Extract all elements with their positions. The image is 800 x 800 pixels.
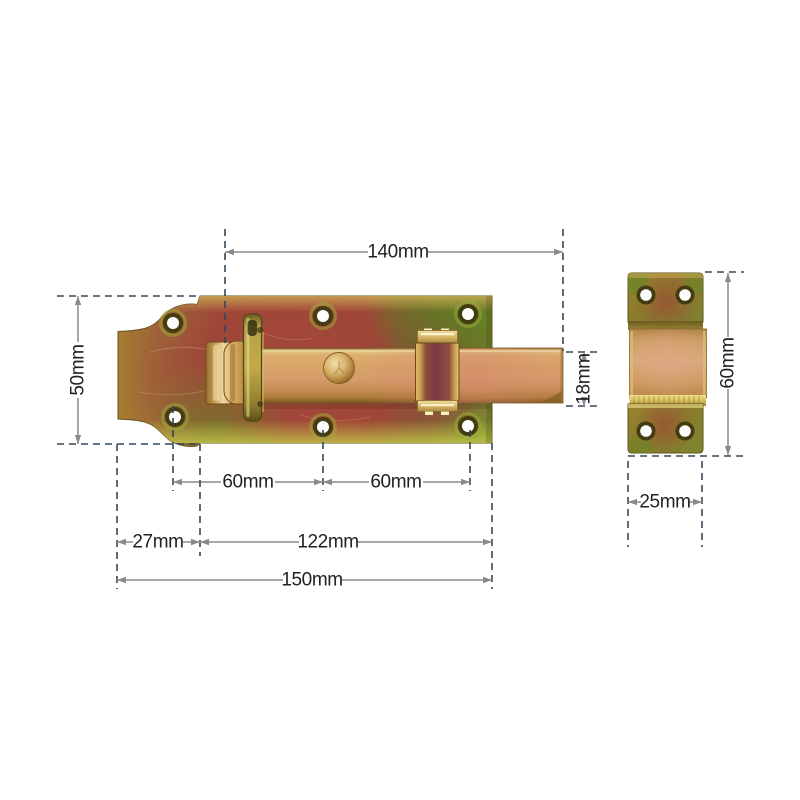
arrowhead-right bbox=[483, 539, 492, 545]
keeper-product-photo bbox=[620, 266, 709, 461]
arrowhead-right bbox=[191, 539, 200, 545]
arrowhead-left bbox=[117, 577, 126, 583]
dim-label-keeper-height: 60mm bbox=[718, 337, 739, 388]
arrowhead-left bbox=[628, 499, 637, 505]
arrowhead-left bbox=[225, 249, 234, 255]
screw-hole bbox=[163, 405, 188, 430]
screw-hole bbox=[676, 422, 695, 441]
arrowhead-left bbox=[200, 539, 209, 545]
bolt-product-photo bbox=[110, 290, 563, 450]
arrowhead-right bbox=[554, 249, 563, 255]
dim-label-hole-spacing-left: 60mm bbox=[222, 472, 273, 493]
dim-label-bar-length: 140mm bbox=[367, 242, 428, 263]
arrowhead-right bbox=[461, 479, 470, 485]
arrowhead-right bbox=[483, 577, 492, 583]
arrowhead-left bbox=[323, 479, 332, 485]
dim-label-plate-height: 50mm bbox=[68, 344, 89, 395]
screw-hole bbox=[456, 302, 481, 327]
dim-label-keeper-width: 25mm bbox=[639, 492, 690, 513]
dim-label-bar-height: 18mm bbox=[574, 353, 595, 404]
keeper-top-overlays bbox=[620, 266, 709, 325]
arrowhead-right bbox=[693, 499, 702, 505]
keeper-bridge-edge-right bbox=[703, 331, 706, 396]
arrowhead-up bbox=[75, 296, 81, 305]
dim-label-plate-section: 122mm bbox=[297, 532, 358, 553]
arrowhead-down bbox=[75, 435, 81, 444]
screw-hole bbox=[637, 286, 656, 305]
arrowhead-down bbox=[725, 446, 731, 455]
dim-label-head-section: 27mm bbox=[132, 532, 183, 553]
screw-hole bbox=[676, 286, 695, 305]
dimension-bar-height: 18mm bbox=[566, 352, 599, 406]
arrowhead-left bbox=[173, 479, 182, 485]
bolt-bar bbox=[225, 348, 563, 403]
keeper-bridge-tint bbox=[630, 329, 707, 398]
guide-bracket bbox=[416, 329, 460, 416]
dimension-total-width: 150mm bbox=[117, 570, 492, 591]
dome-rivet bbox=[324, 353, 355, 384]
dimension-sections: 27mm 122mm bbox=[117, 443, 492, 589]
screw-hole bbox=[456, 414, 481, 439]
screw-hole bbox=[311, 304, 336, 329]
product-dimension-diagram: 140mm 18mm 50mm bbox=[0, 0, 800, 800]
arrowhead-up bbox=[725, 273, 731, 282]
keeper-bridge-edge-left bbox=[631, 331, 634, 396]
arrowhead-right bbox=[314, 479, 323, 485]
dim-label-hole-spacing-right: 60mm bbox=[370, 472, 421, 493]
screw-hole bbox=[161, 311, 186, 336]
diagram-canvas: 140mm 18mm 50mm bbox=[0, 0, 800, 800]
dim-label-total-width: 150mm bbox=[281, 570, 342, 591]
screw-hole bbox=[637, 422, 656, 441]
bar-tip-face bbox=[561, 350, 564, 402]
arrowhead-left bbox=[117, 539, 126, 545]
dimension-keeper-width: 25mm bbox=[628, 461, 702, 547]
locking-tab bbox=[244, 314, 265, 421]
